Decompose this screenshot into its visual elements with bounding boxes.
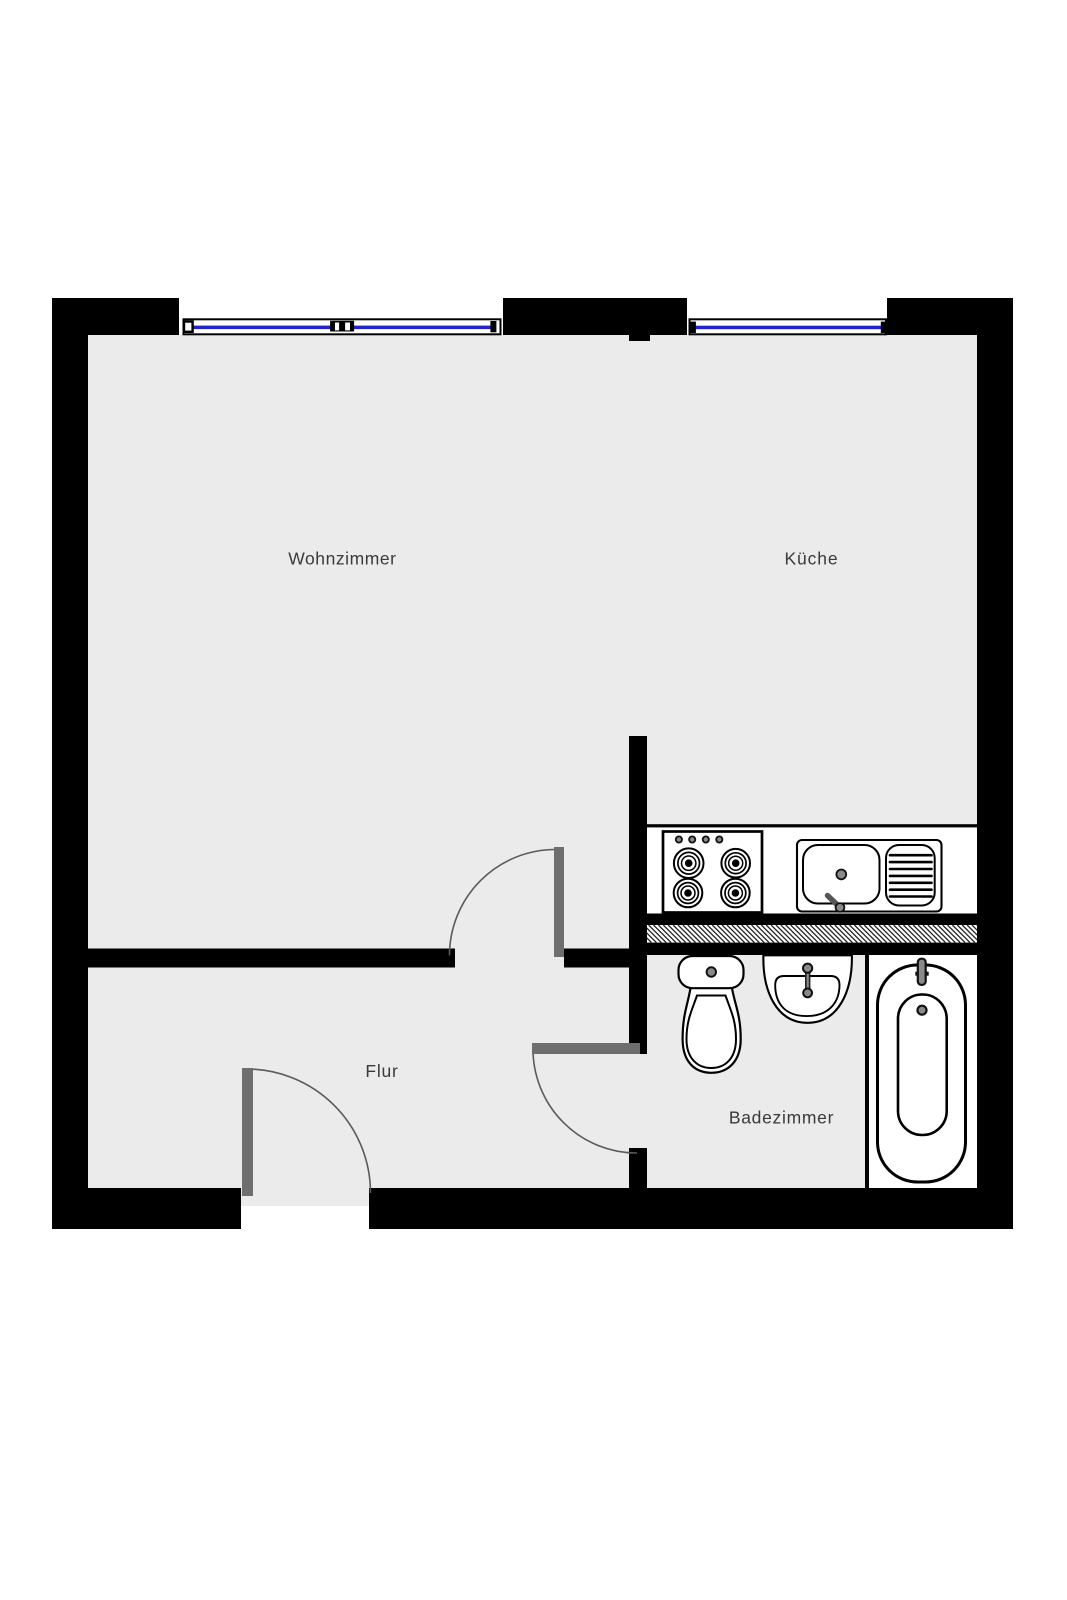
svg-text:Flur: Flur [365, 1061, 398, 1081]
svg-text:Küche: Küche [784, 549, 838, 569]
svg-text:Wohnzimmer: Wohnzimmer [288, 549, 396, 569]
svg-text:Badezimmer: Badezimmer [729, 1108, 834, 1128]
